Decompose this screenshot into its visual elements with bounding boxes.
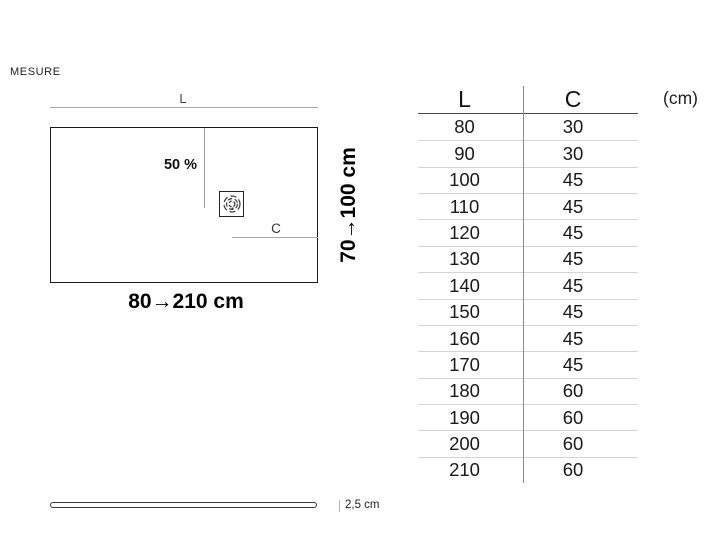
table-row: 20060: [418, 430, 638, 456]
table-row: 19060: [418, 404, 638, 430]
cell-c: 45: [523, 222, 638, 244]
cell-l: 200: [418, 433, 523, 455]
cell-l: 90: [418, 143, 523, 165]
cell-c: 30: [523, 116, 638, 138]
table-row: 17045: [418, 351, 638, 377]
table-row: 18060: [418, 378, 638, 404]
tray-outline: 50 % C: [50, 127, 318, 283]
cell-l: 170: [418, 354, 523, 376]
cell-c: 60: [523, 433, 638, 455]
cell-l: 160: [418, 328, 523, 350]
table-row: 10045: [418, 167, 638, 193]
cell-c: 45: [523, 169, 638, 191]
cell-l: 80: [418, 116, 523, 138]
cell-l: 180: [418, 380, 523, 402]
measure-spec-sheet: MESURE L 50 % C 80→210 cm 70→100 cm 2,: [0, 0, 720, 540]
cell-l: 150: [418, 301, 523, 323]
cell-l: 130: [418, 248, 523, 270]
table-row: 16045: [418, 325, 638, 351]
cell-c: 60: [523, 380, 638, 402]
table-row: 12045: [418, 219, 638, 245]
length-range-label: 80→210 cm: [96, 290, 276, 314]
cell-l: 100: [418, 169, 523, 191]
cell-c: 30: [523, 143, 638, 165]
cell-c: 45: [523, 328, 638, 350]
cell-c: 60: [523, 407, 638, 429]
table-row: 9030: [418, 140, 638, 166]
width-dimension-line: [232, 237, 318, 238]
table-header-row: L C: [418, 86, 638, 114]
page-title: MESURE: [10, 66, 61, 78]
cell-c: 45: [523, 248, 638, 270]
dimensions-table: L C 803090301004511045120451304514045150…: [418, 86, 638, 483]
table-header-l: L: [418, 86, 523, 113]
length-dimension-label: L: [168, 91, 198, 106]
tray-profile-bar: [50, 502, 317, 508]
drain-swirl-icon: [221, 193, 243, 216]
table-row: 13045: [418, 246, 638, 272]
slope-divider-line: [204, 128, 205, 208]
thickness-label: 2,5 cm: [345, 499, 380, 511]
cell-l: 210: [418, 459, 523, 481]
drain-icon: [219, 191, 244, 217]
table-row: 15045: [418, 299, 638, 325]
cell-c: 45: [523, 275, 638, 297]
thickness-tick: [339, 500, 340, 512]
length-dimension-line: [50, 107, 318, 108]
cell-c: 45: [523, 354, 638, 376]
unit-label: (cm): [663, 88, 698, 109]
table-body: 8030903010045110451204513045140451504516…: [418, 114, 638, 483]
table-column-divider: [523, 86, 524, 483]
table-row: 11045: [418, 193, 638, 219]
table-row: 8030: [418, 114, 638, 140]
cell-c: 60: [523, 459, 638, 481]
cell-c: 45: [523, 196, 638, 218]
cell-l: 120: [418, 222, 523, 244]
table-row: 14045: [418, 272, 638, 298]
width-dimension-label: C: [265, 221, 287, 236]
cell-l: 110: [418, 196, 523, 218]
cell-l: 190: [418, 407, 523, 429]
cell-l: 140: [418, 275, 523, 297]
width-range-label: 70→100 cm: [337, 120, 361, 290]
table-row: 21060: [418, 457, 638, 483]
table-header-c: C: [523, 86, 638, 113]
slope-percentage-label: 50 %: [149, 157, 197, 173]
cell-c: 45: [523, 301, 638, 323]
